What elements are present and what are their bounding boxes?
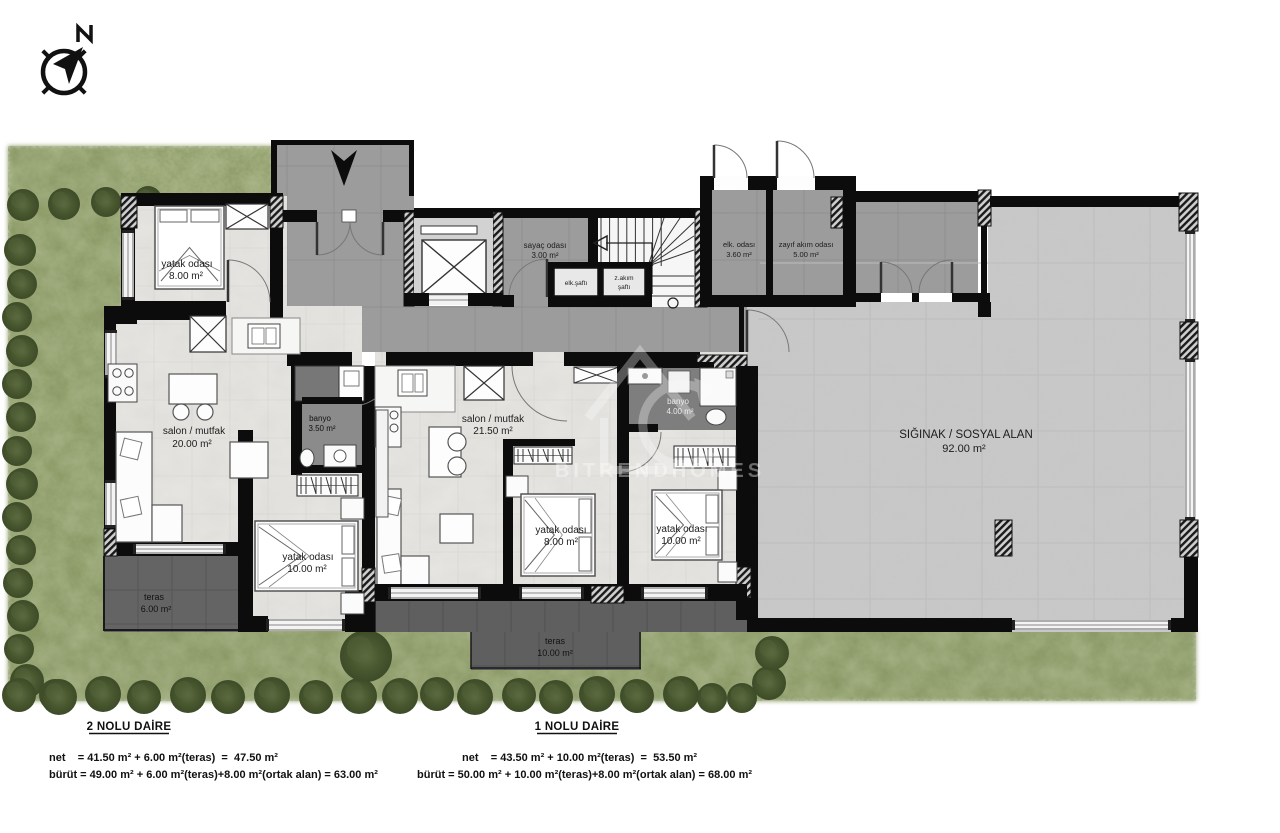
svg-text:yatak odası: yatak odası bbox=[656, 524, 707, 535]
svg-text:3.50 m²: 3.50 m² bbox=[308, 424, 335, 433]
svg-text:1 NOLU DAİRE: 1 NOLU DAİRE bbox=[535, 720, 620, 733]
svg-text:10.00 m²: 10.00 m² bbox=[661, 536, 701, 547]
svg-text:banyo: banyo bbox=[309, 414, 331, 423]
svg-text:6.00 m²: 6.00 m² bbox=[141, 604, 172, 614]
svg-text:5.00 m²: 5.00 m² bbox=[793, 250, 819, 259]
svg-text:2 NOLU DAİRE: 2 NOLU DAİRE bbox=[87, 720, 172, 733]
svg-text:BITRENDHOMES: BITRENDHOMES bbox=[555, 460, 765, 482]
svg-text:zayıf akım odası: zayıf akım odası bbox=[779, 240, 834, 249]
svg-text:bürüt = 49.00 m² + 6.00 m²(ter: bürüt = 49.00 m² + 6.00 m²(teras)+8.00 m… bbox=[49, 769, 378, 781]
svg-text:z.akım: z.akım bbox=[614, 275, 633, 282]
svg-text:teras: teras bbox=[545, 636, 566, 646]
svg-text:net = 43.50 m² + 10.00 m²(t: net = 43.50 m² + 10.00 m²(teras) = 53.50… bbox=[462, 752, 697, 764]
svg-text:şaftı: şaftı bbox=[618, 284, 630, 291]
svg-text:20.00 m²: 20.00 m² bbox=[172, 439, 212, 450]
svg-text:teras: teras bbox=[144, 592, 165, 602]
svg-text:10.00 m²: 10.00 m² bbox=[537, 648, 573, 658]
svg-text:salon / mutfak: salon / mutfak bbox=[163, 426, 226, 437]
svg-text:yatak odası: yatak odası bbox=[282, 552, 333, 563]
svg-text:92.00 m²: 92.00 m² bbox=[942, 443, 986, 455]
svg-text:elk.şaftı: elk.şaftı bbox=[565, 280, 588, 287]
svg-text:8.00 m²: 8.00 m² bbox=[169, 271, 204, 282]
svg-text:3.60 m²: 3.60 m² bbox=[726, 250, 752, 259]
svg-text:net = 41.50 m² + 6.00 m²(te: net = 41.50 m² + 6.00 m²(teras) = 47.50 … bbox=[49, 752, 278, 764]
svg-text:21.50 m²: 21.50 m² bbox=[473, 426, 513, 437]
svg-text:elk. odası: elk. odası bbox=[723, 240, 755, 249]
svg-text:yatak odası: yatak odası bbox=[535, 525, 586, 536]
svg-text:SIĞINAK / SOSYAL ALAN: SIĞINAK / SOSYAL ALAN bbox=[899, 428, 1033, 441]
svg-text:10.00 m²: 10.00 m² bbox=[287, 564, 327, 575]
svg-text:salon / mutfak: salon / mutfak bbox=[462, 414, 525, 425]
svg-text:bürüt = 50.00 m² + 10.00 m²(te: bürüt = 50.00 m² + 10.00 m²(teras)+8.00 … bbox=[417, 769, 752, 781]
svg-text:sayaç odası: sayaç odası bbox=[524, 241, 567, 250]
svg-text:8.00 m²: 8.00 m² bbox=[544, 537, 579, 548]
svg-text:yatak odası: yatak odası bbox=[161, 259, 212, 270]
